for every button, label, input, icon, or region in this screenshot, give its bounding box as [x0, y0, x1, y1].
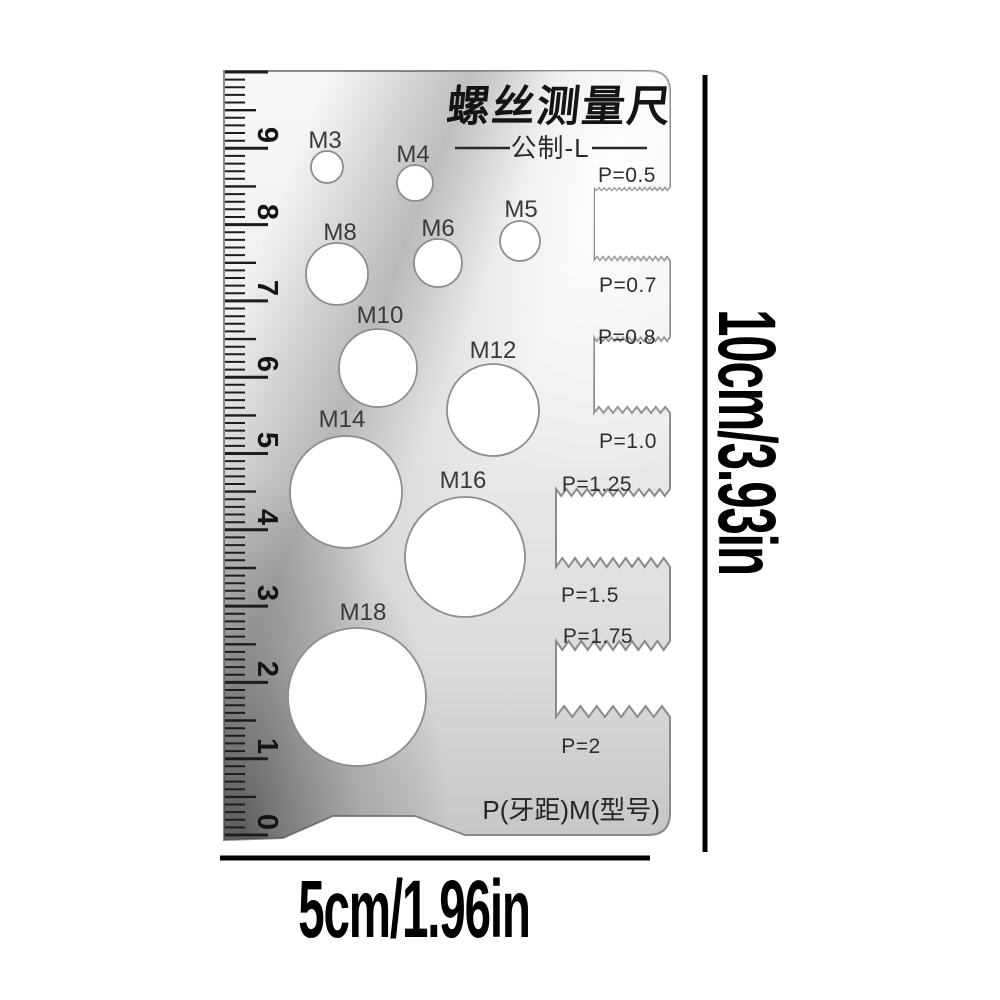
pitch-label-0-5: P=0.5 [598, 164, 656, 187]
hole-m12 [447, 364, 539, 456]
hole-label-m8: M8 [323, 219, 356, 246]
screw-gauge-figure: 9 8 7 6 5 4 3 2 1 0 螺丝测量尺 公制-L M3 M4 M5 … [0, 0, 1000, 1000]
pitch-label-0-7: P=0.7 [599, 274, 657, 297]
hole-label-m16: M16 [440, 467, 487, 494]
height-dimension-label: 10cm/3.93in [701, 309, 792, 575]
pitch-label-1-5: P=1.5 [561, 584, 619, 607]
ruler-number-7: 7 [251, 280, 283, 296]
ruler-number-3: 3 [251, 585, 283, 601]
card-subtitle: 公制-L [510, 133, 589, 163]
hole-m3 [311, 151, 343, 183]
card-title: 螺丝测量尺 [444, 83, 674, 131]
hole-m18 [288, 628, 426, 766]
gauge-card: 9 8 7 6 5 4 3 2 1 0 螺丝测量尺 公制-L M3 M4 M5 … [224, 71, 674, 840]
hole-m5 [500, 221, 540, 261]
hole-m8 [306, 243, 368, 305]
hole-m16 [405, 497, 525, 617]
ruler-number-1: 1 [251, 738, 283, 754]
pitch-label-1-75: P=1.75 [563, 625, 633, 648]
pitch-label-1-0: P=1.0 [599, 430, 657, 453]
hole-label-m10: M10 [357, 302, 404, 329]
pitch-label-0-8: P=0.8 [598, 326, 656, 349]
hole-label-m14: M14 [319, 406, 366, 433]
card-footer-legend: P(牙距)M(型号) [482, 795, 660, 825]
hole-label-m18: M18 [340, 599, 387, 626]
ruler-number-8: 8 [251, 204, 283, 220]
ruler-number-5: 5 [251, 432, 283, 448]
hole-label-m12: M12 [470, 337, 517, 364]
hole-m4 [397, 165, 433, 201]
ruler-number-9: 9 [251, 127, 283, 143]
product-image: 9 8 7 6 5 4 3 2 1 0 螺丝测量尺 公制-L M3 M4 M5 … [0, 0, 1000, 1000]
hole-m14 [290, 436, 402, 548]
pitch-label-2: P=2 [561, 735, 600, 758]
ruler-number-2: 2 [251, 661, 283, 677]
pitch-label-1-25: P=1.25 [562, 473, 632, 496]
hole-label-m4: M4 [396, 141, 429, 168]
width-dimension-label: 5cm/1.96in [298, 864, 530, 956]
ruler-number-4: 4 [251, 509, 283, 525]
hole-m10 [339, 329, 417, 407]
hole-label-m3: M3 [308, 127, 341, 154]
hole-label-m6: M6 [421, 215, 454, 242]
hole-label-m5: M5 [504, 196, 537, 223]
hole-m6 [414, 239, 462, 287]
ruler-number-6: 6 [251, 356, 283, 372]
ruler-number-0: 0 [251, 814, 283, 830]
